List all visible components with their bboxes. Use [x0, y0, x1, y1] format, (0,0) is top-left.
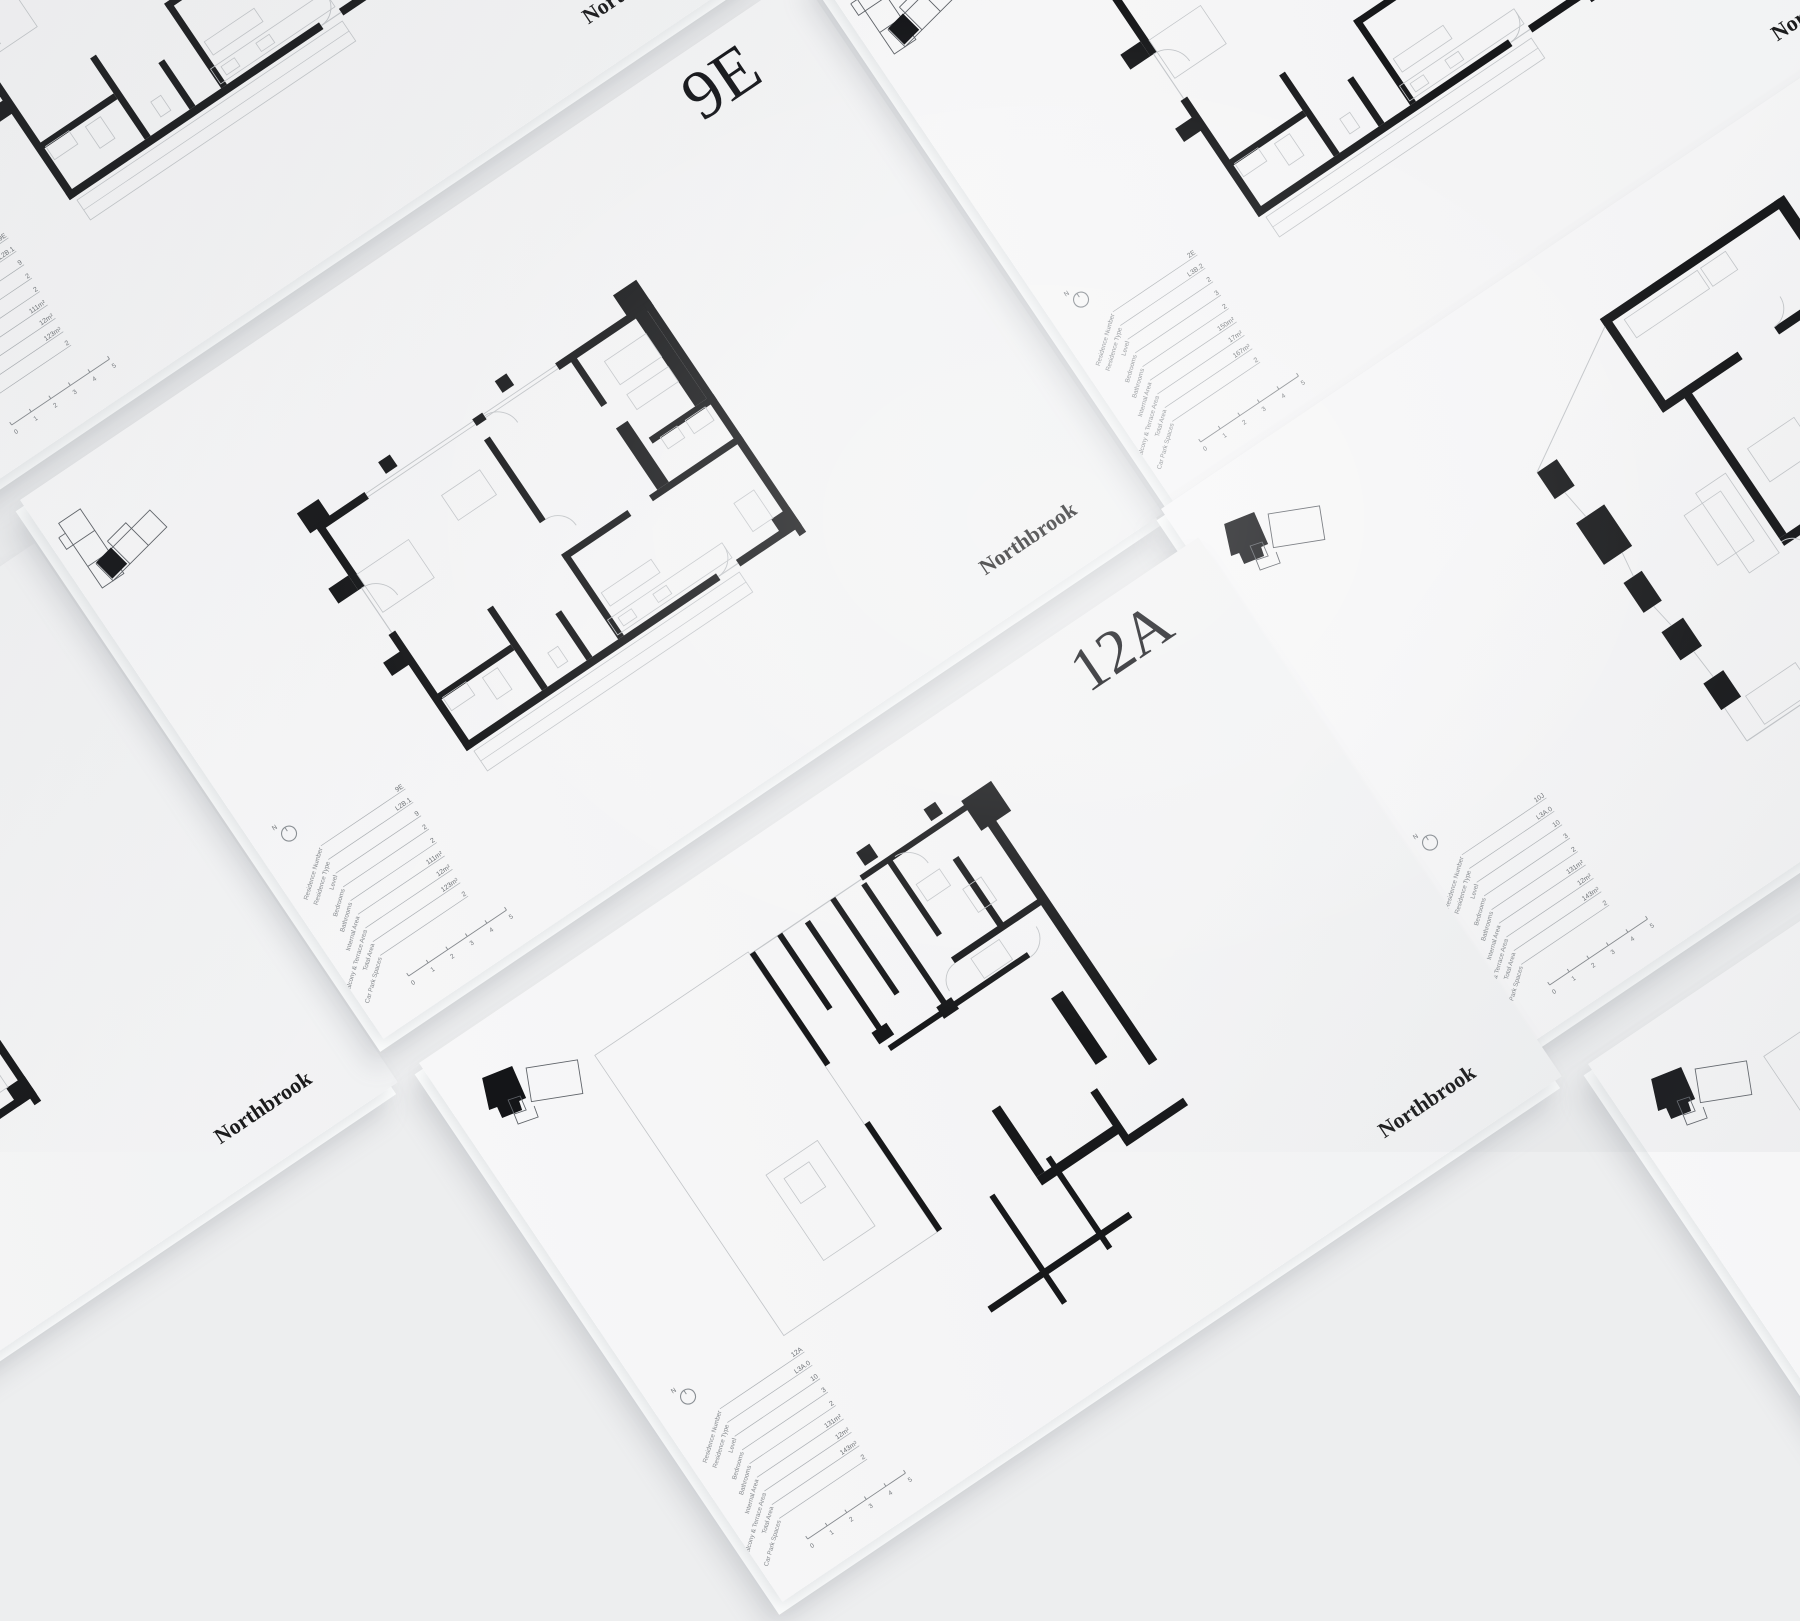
svg-text:150m²: 150m² — [1216, 316, 1236, 333]
svg-text:0: 0 — [410, 979, 417, 987]
svg-text:10: 10 — [1551, 819, 1561, 829]
svg-text:4: 4 — [1280, 392, 1287, 400]
svg-text:9E: 9E — [668, 29, 774, 135]
svg-text:12m²: 12m² — [834, 1426, 851, 1441]
svg-text:Level: Level — [1120, 340, 1131, 356]
svg-text:4: 4 — [91, 375, 98, 383]
svg-text:9E: 9E — [394, 783, 405, 794]
svg-text:Level: Level — [727, 1437, 738, 1453]
svg-text:167m²: 167m² — [1232, 343, 1252, 360]
svg-text:0: 0 — [809, 1542, 816, 1550]
svg-text:3: 3 — [1261, 405, 1268, 413]
svg-text:2E: 2E — [1186, 249, 1197, 260]
svg-text:5: 5 — [508, 913, 515, 921]
svg-text:4: 4 — [488, 926, 495, 934]
svg-text:Northbrook: Northbrook — [1766, 0, 1800, 46]
svg-text:5: 5 — [1300, 379, 1307, 387]
svg-text:3: 3 — [469, 939, 476, 947]
svg-text:0: 0 — [13, 428, 20, 436]
svg-text:N: N — [271, 824, 279, 833]
svg-text:2: 2 — [1590, 962, 1597, 970]
svg-text:10: 10 — [809, 1373, 819, 1383]
svg-text:Level: Level — [1469, 883, 1480, 899]
svg-text:N: N — [1063, 290, 1071, 299]
svg-text:1: 1 — [33, 415, 40, 423]
svg-text:3: 3 — [72, 388, 79, 396]
svg-text:Northbrook: Northbrook — [209, 1065, 317, 1149]
svg-text:5: 5 — [1649, 922, 1656, 930]
svg-text:4: 4 — [1629, 935, 1636, 943]
svg-text:2: 2 — [52, 402, 59, 410]
svg-text:N: N — [1412, 833, 1420, 842]
svg-text:5: 5 — [907, 1476, 914, 1484]
svg-text:2: 2 — [1241, 419, 1248, 427]
svg-text:0: 0 — [1551, 988, 1558, 996]
svg-text:1: 1 — [1571, 975, 1578, 983]
svg-text:131m²: 131m² — [823, 1413, 843, 1430]
svg-text:131m²: 131m² — [1565, 859, 1585, 876]
svg-text:12m²: 12m² — [1576, 872, 1593, 887]
svg-text:12A: 12A — [1058, 589, 1185, 705]
svg-text:3: 3 — [1610, 948, 1617, 956]
svg-text:1: 1 — [1222, 432, 1229, 440]
svg-text:L2B.1: L2B.1 — [0, 246, 16, 262]
svg-text:Northbrook: Northbrook — [1373, 1059, 1481, 1143]
svg-text:Northbrook: Northbrook — [974, 496, 1082, 580]
svg-text:2: 2 — [449, 953, 456, 961]
svg-text:143m²: 143m² — [1581, 886, 1601, 903]
svg-text:3: 3 — [868, 1502, 875, 1510]
svg-text:Level: Level — [328, 874, 339, 890]
svg-text:12m²: 12m² — [435, 863, 452, 878]
svg-text:143m²: 143m² — [839, 1440, 859, 1457]
svg-text:5: 5 — [111, 362, 118, 370]
svg-text:1: 1 — [430, 966, 437, 974]
svg-text:12m²: 12m² — [38, 312, 55, 327]
svg-text:2: 2 — [848, 1516, 855, 1524]
svg-text:123m²: 123m² — [440, 877, 460, 894]
svg-text:N: N — [670, 1387, 678, 1396]
svg-text:123m²: 123m² — [43, 326, 63, 343]
svg-text:10J: 10J — [1533, 792, 1546, 804]
svg-text:4: 4 — [887, 1489, 894, 1497]
svg-text:1: 1 — [829, 1529, 836, 1537]
svg-text:9E: 9E — [0, 232, 8, 243]
svg-text:Northbrook: Northbrook — [577, 0, 685, 29]
svg-text:17m²: 17m² — [1227, 329, 1244, 344]
svg-text:0: 0 — [1202, 445, 1209, 453]
